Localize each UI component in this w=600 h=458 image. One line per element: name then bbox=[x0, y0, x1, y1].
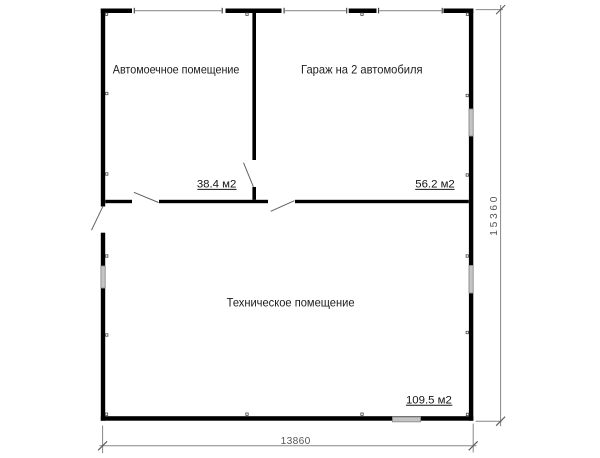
svg-text:Техническое помещение: Техническое помещение bbox=[227, 297, 355, 310]
svg-text:Гараж на 2 автомобиля: Гараж на 2 автомобиля bbox=[301, 64, 423, 77]
svg-text:38.4 м2: 38.4 м2 bbox=[197, 178, 237, 190]
svg-text:13860: 13860 bbox=[281, 436, 311, 447]
svg-text:56.2 м2: 56.2 м2 bbox=[415, 179, 455, 191]
svg-text:Автомоечное помещение: Автомоечное помещение bbox=[113, 63, 240, 76]
